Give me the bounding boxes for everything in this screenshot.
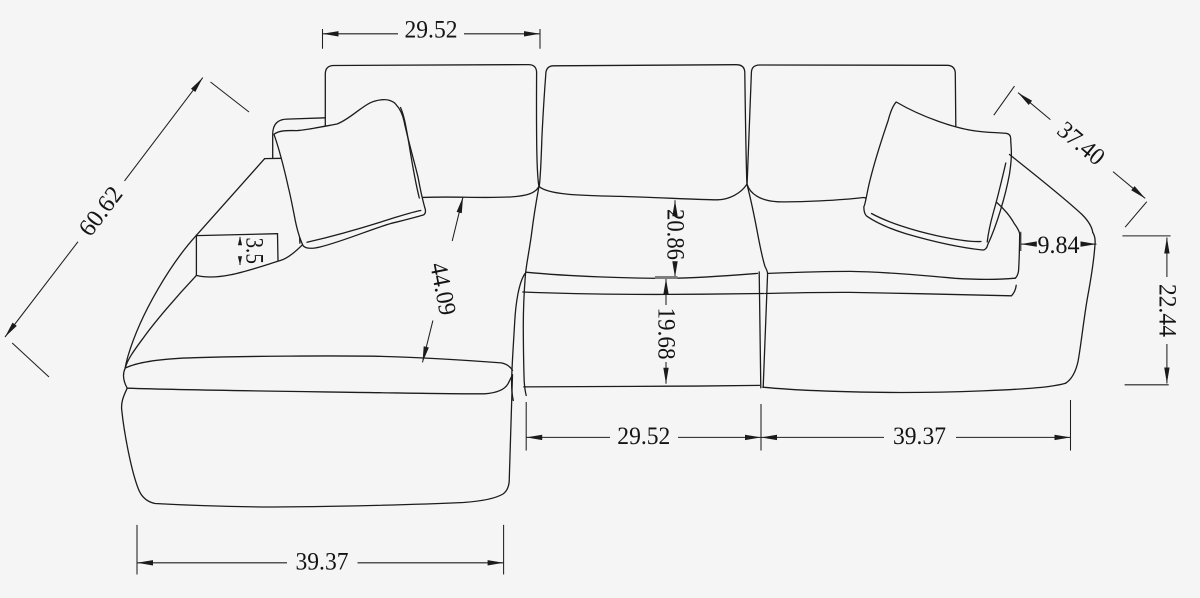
svg-text:39.37: 39.37: [893, 423, 946, 450]
svg-text:39.37: 39.37: [296, 549, 349, 576]
svg-text:20.86: 20.86: [662, 209, 689, 260]
svg-text:29.52: 29.52: [617, 423, 670, 450]
svg-text:22.44: 22.44: [1153, 284, 1180, 338]
svg-text:19.68: 19.68: [653, 308, 680, 360]
svg-text:9.84: 9.84: [1038, 232, 1081, 259]
svg-text:29.52: 29.52: [405, 16, 458, 43]
svg-text:3.5: 3.5: [240, 237, 269, 264]
